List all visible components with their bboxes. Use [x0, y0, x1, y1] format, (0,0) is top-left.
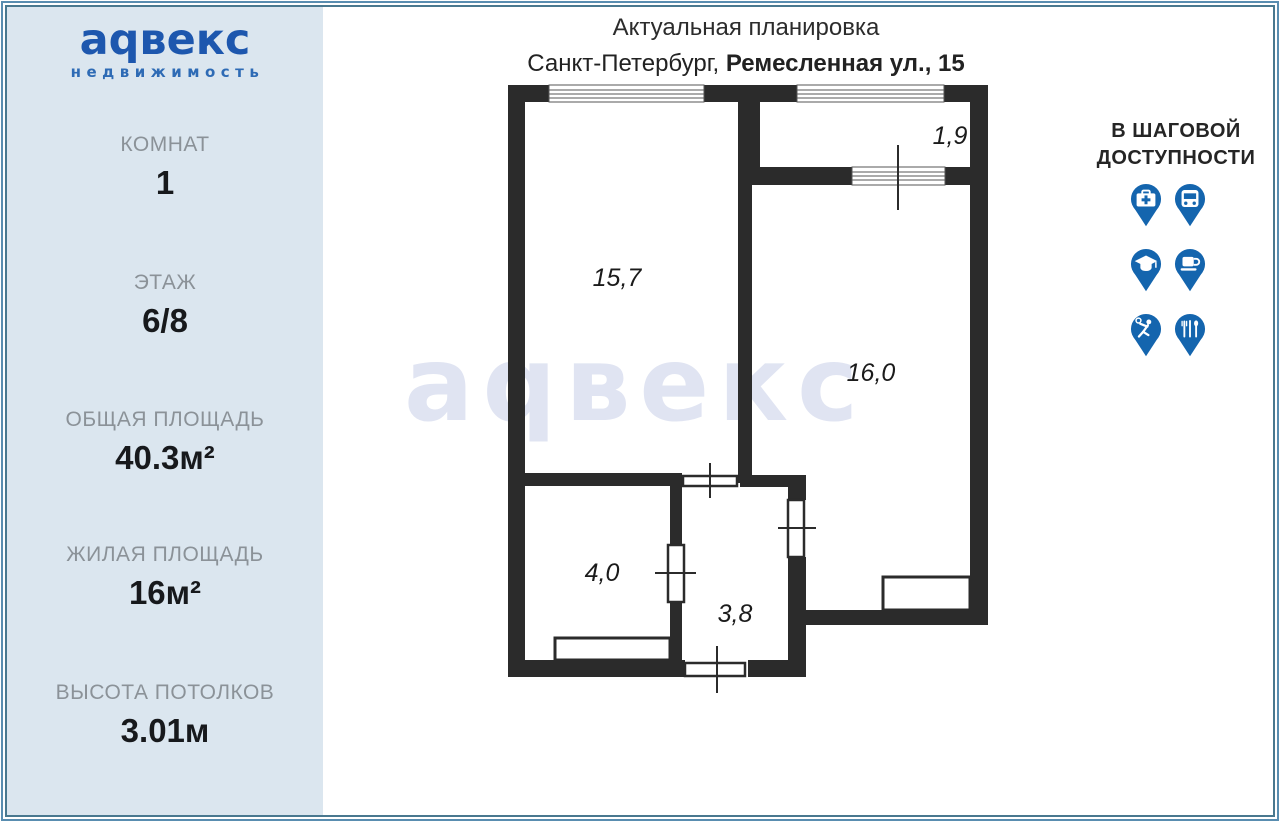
door-leaves: [668, 476, 804, 676]
education-pin-icon: [1127, 248, 1165, 295]
stat-total-area-value: 40.3м²: [7, 439, 323, 477]
stat-floor-value: 6/8: [7, 302, 323, 340]
kitchen-niche: [555, 638, 670, 660]
nearby-title-line1: В ШАГОВОЙ: [1076, 118, 1276, 145]
nearby-title-line2: ДОСТУПНОСТИ: [1076, 145, 1276, 172]
stat-living-area: ЖИЛАЯ ПЛОЩАДЬ 16м²: [7, 543, 323, 612]
stat-ceiling-height: ВЫСОТА ПОТОЛКОВ 3.01м: [7, 681, 323, 750]
address-street: Ремесленная ул., 15: [726, 50, 965, 77]
room-label-living: 15,7: [593, 264, 643, 292]
floor-plan: 15,7 1,9 16,0 4,0 3,8: [500, 80, 1060, 696]
cafe-pin-icon: [1171, 248, 1209, 295]
stat-floor-label: ЭТАЖ: [7, 271, 323, 295]
window-balcony-top: [797, 85, 944, 102]
agency-logo-brand: аqвекс: [7, 19, 323, 62]
nearby-title: В ШАГОВОЙ ДОСТУПНОСТИ: [1076, 118, 1276, 172]
stat-rooms-value: 1: [7, 164, 323, 202]
bus-pin-icon: [1171, 183, 1209, 230]
property-info-sidebar: аqвекс недвижимость КОМНАТ 1 ЭТАЖ 6/8 ОБ…: [7, 7, 323, 815]
address-line: Санкт-Петербург, Ремесленная ул., 15: [340, 50, 1152, 78]
stat-rooms: КОМНАТ 1: [7, 133, 323, 202]
window-living-room: [549, 85, 704, 102]
stat-total-area: ОБЩАЯ ПЛОЩАДЬ 40.3м²: [7, 408, 323, 477]
room-label-hallway: 3,8: [718, 600, 753, 628]
entrance-door: [685, 663, 745, 676]
bedroom-niche: [883, 577, 970, 610]
floor-plan-drawing: 15,7 1,9 16,0 4,0 3,8: [500, 80, 1060, 696]
stat-ceiling-height-label: ВЫСОТА ПОТОЛКОВ: [7, 681, 323, 705]
restaurant-pin-icon: [1171, 313, 1209, 360]
stat-rooms-label: КОМНАТ: [7, 133, 323, 157]
page-title: Актуальная планировка: [340, 14, 1152, 42]
stat-floor: ЭТАЖ 6/8: [7, 271, 323, 340]
room-labels: 15,7 1,9 16,0 4,0 3,8: [585, 122, 968, 628]
room-label-kitchen: 4,0: [585, 559, 620, 587]
room-label-bedroom: 16,0: [847, 359, 896, 387]
stat-living-area-label: ЖИЛАЯ ПЛОЩАДЬ: [7, 543, 323, 567]
room-label-balcony: 1,9: [933, 122, 968, 150]
agency-logo-tagline: недвижимость: [7, 63, 323, 81]
agency-logo: аqвекс недвижимость: [7, 19, 323, 81]
medical-pin-icon: [1127, 183, 1165, 230]
floorplan-listing-page: { "logo": { "brand": "аqвекс", "tagline"…: [0, 0, 1280, 822]
stat-ceiling-height-value: 3.01м: [7, 712, 323, 750]
nearby-pins: [1127, 183, 1211, 360]
address-city: Санкт-Петербург,: [527, 50, 726, 77]
stat-total-area-label: ОБЩАЯ ПЛОЩАДЬ: [7, 408, 323, 432]
plan-header: Актуальная планировка Санкт-Петербург, Р…: [340, 14, 1152, 78]
stat-living-area-value: 16м²: [7, 574, 323, 612]
sport-pin-icon: [1127, 313, 1165, 360]
